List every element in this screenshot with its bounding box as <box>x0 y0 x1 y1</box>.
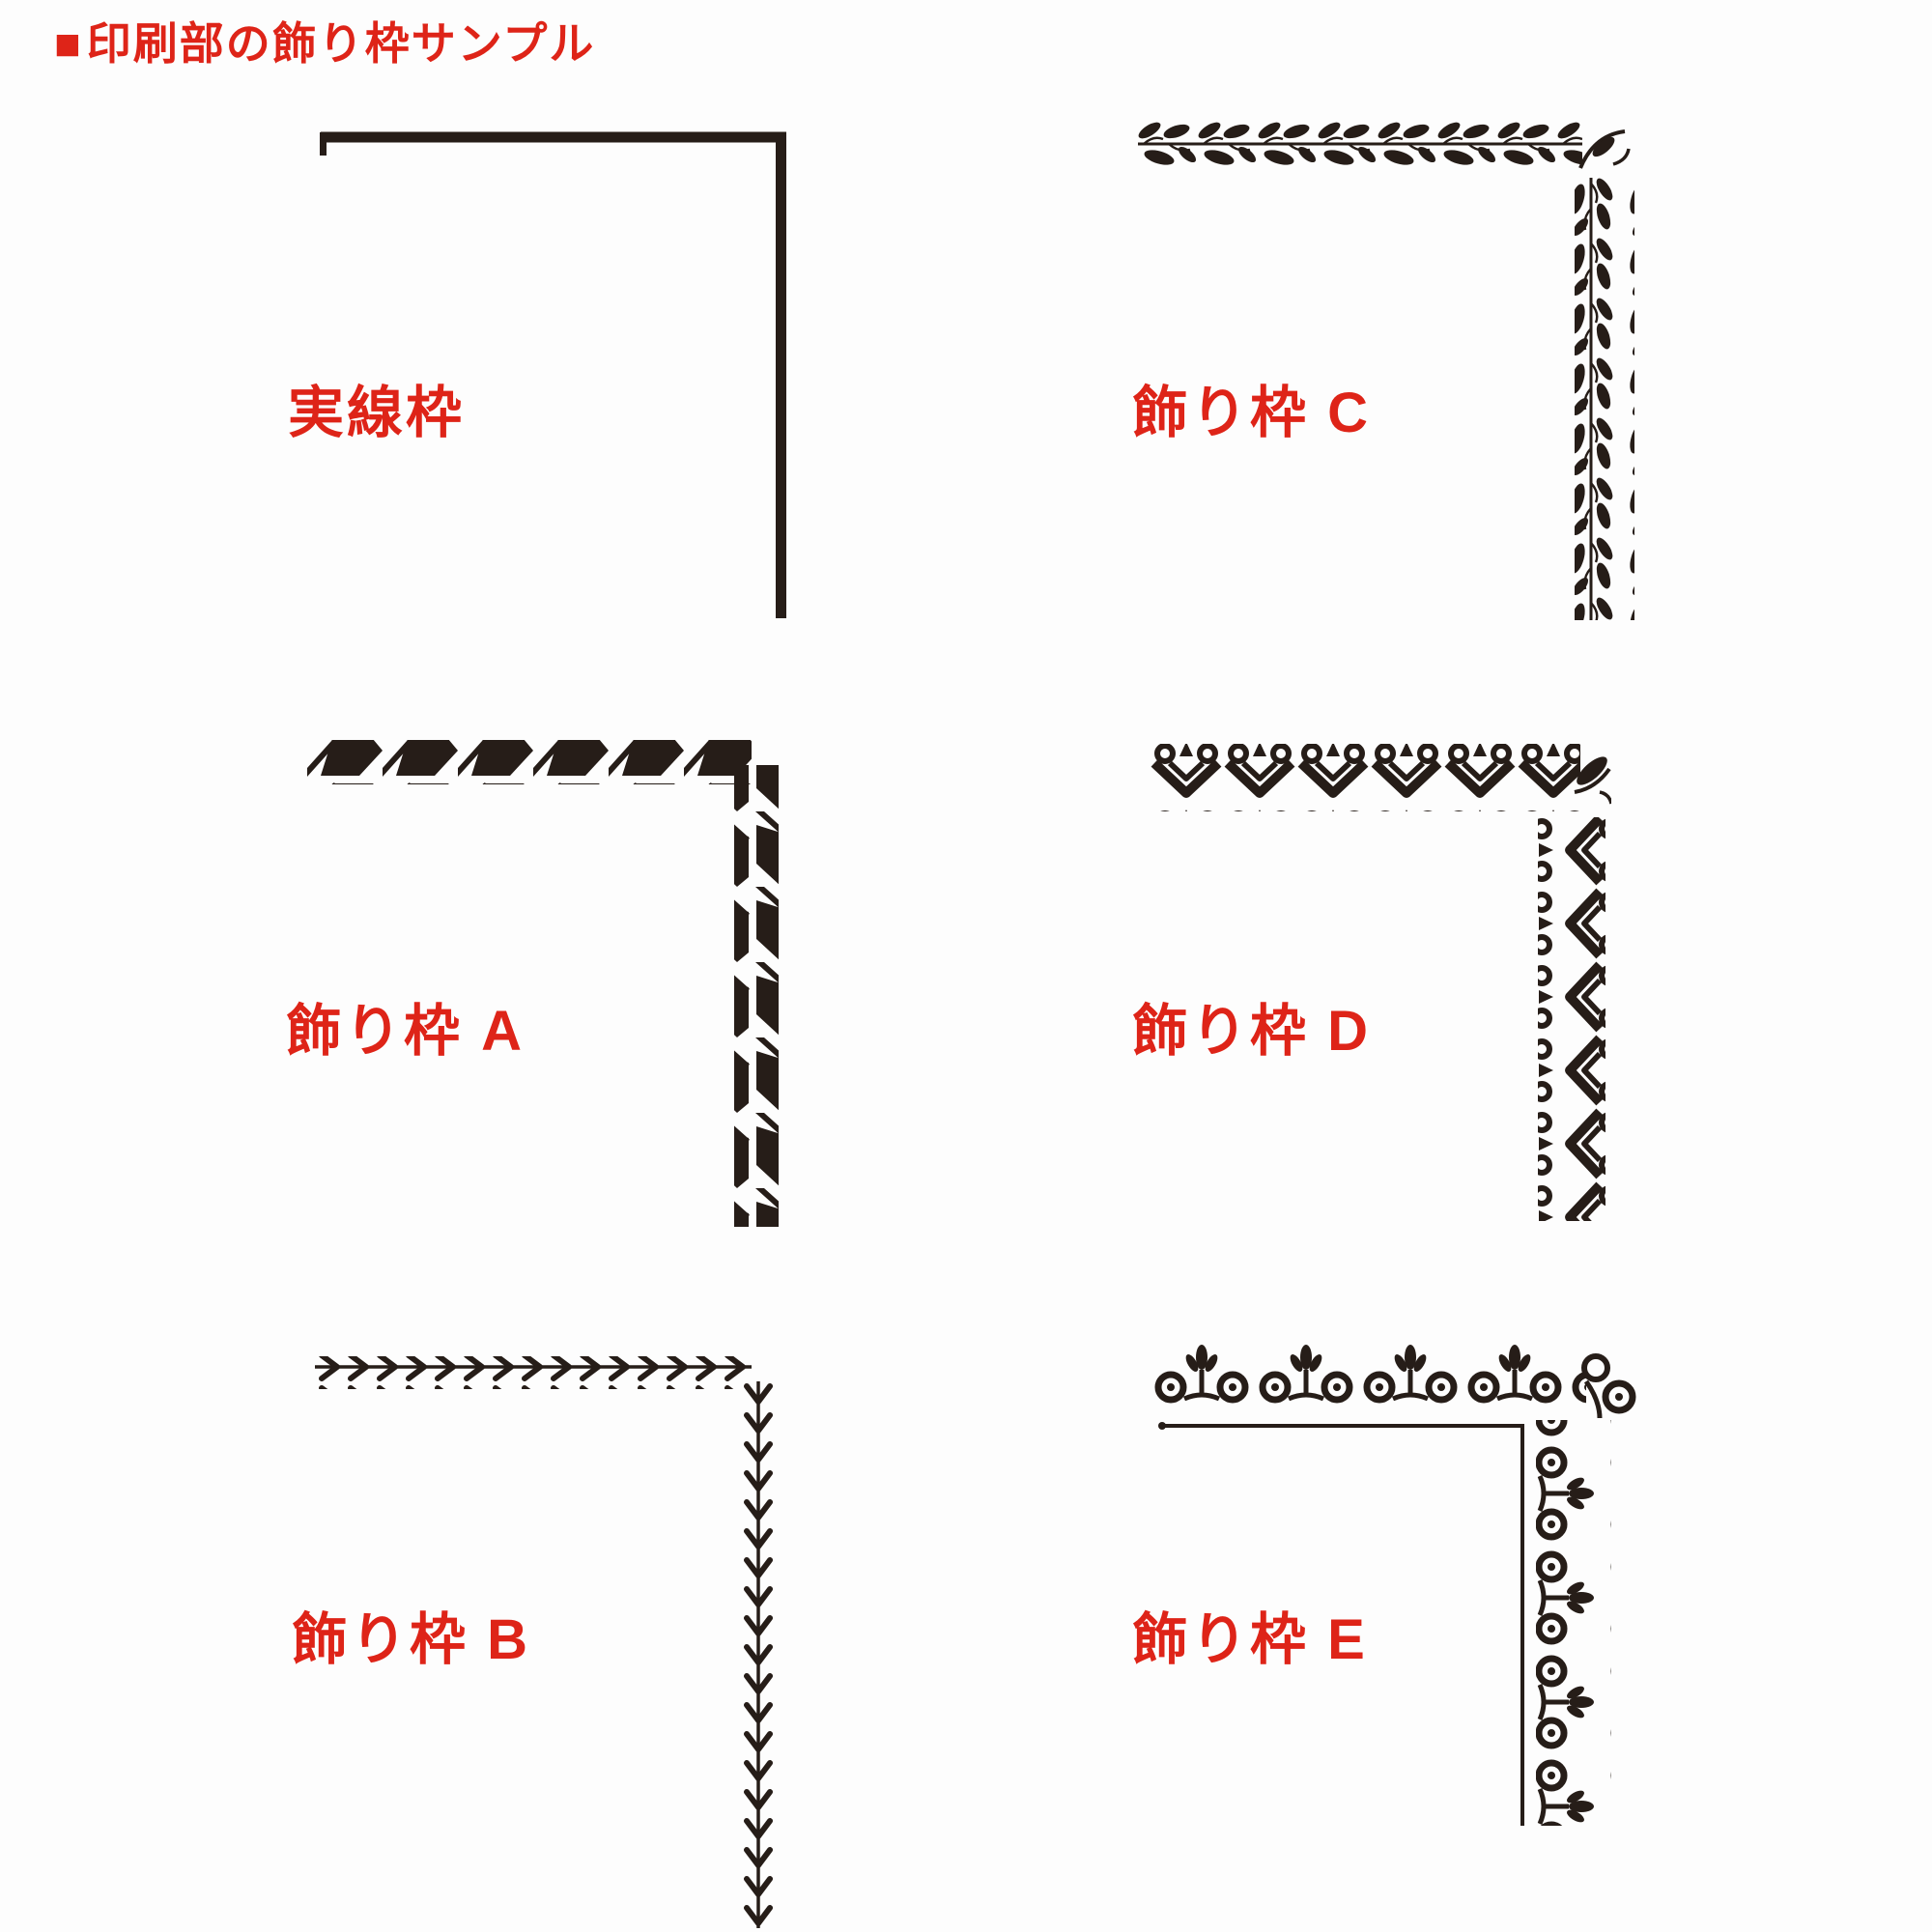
ribbon-zigzag-frame-ornament <box>307 736 782 1231</box>
sample-label-e: 飾り枠 E <box>1132 1609 1368 1671</box>
sample-frame-c <box>1138 118 1640 625</box>
floral-scroll-frame-ornament <box>1150 1337 1652 1839</box>
sample-frame-e <box>1150 1337 1652 1839</box>
title-bullet: ■ <box>54 17 83 71</box>
sample-label-solid: 実線枠 <box>288 383 465 444</box>
heart-scroll-frame-ornament <box>1150 740 1611 1223</box>
solid-line-frame-ornament <box>317 124 792 622</box>
sample-solid-frame <box>317 124 792 622</box>
sample-frame-a <box>307 736 782 1231</box>
page: ■ 印刷部の飾り枠サンプル 実線枠 <box>0 0 1932 1932</box>
sample-label-b: 飾り枠 B <box>292 1609 530 1671</box>
sample-label-a: 飾り枠 A <box>286 1001 525 1063</box>
leaf-vine-frame-ornament <box>1138 118 1640 625</box>
sample-frame-d <box>1150 740 1611 1223</box>
title-text: 印刷部の飾り枠サンプル <box>87 17 596 71</box>
page-title: ■ 印刷部の飾り枠サンプル <box>54 17 595 71</box>
sample-label-c: 飾り枠 C <box>1132 383 1371 444</box>
sample-label-d: 飾り枠 D <box>1132 1001 1371 1063</box>
